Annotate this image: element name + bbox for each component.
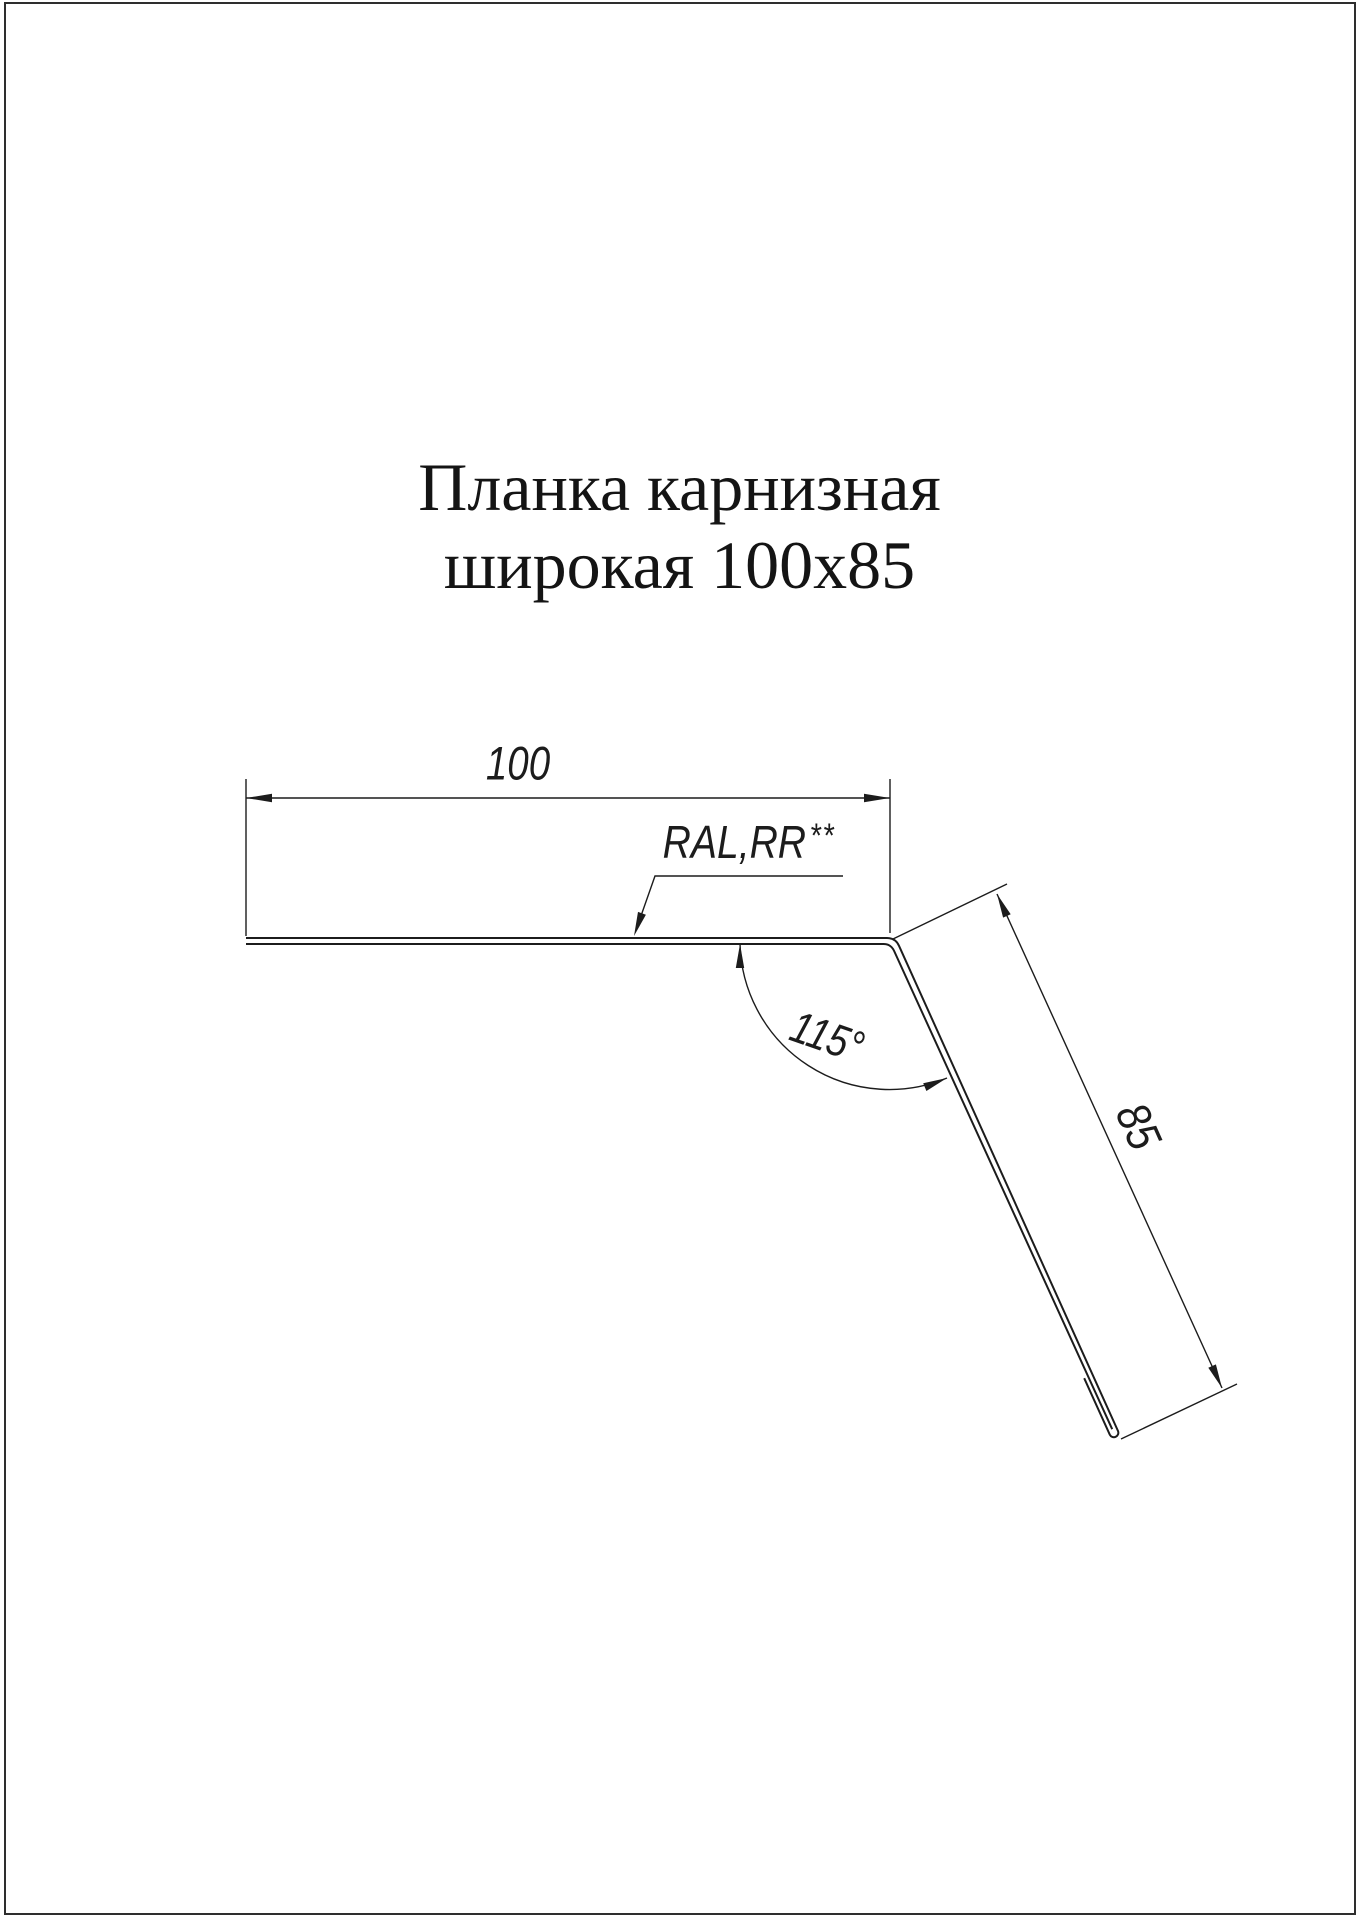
coating-note-asterisks: ** [806, 817, 835, 855]
plate-outer-surface-line [246, 938, 1118, 1437]
drawing-title: Планка карнизная широкая 100x85 [8, 448, 1351, 604]
flange-dimension-line [997, 894, 1222, 1388]
page-border-frame [5, 3, 1355, 1914]
angle-arrow-slope-icon [923, 1078, 947, 1091]
plate-inner-surface-line [246, 944, 1112, 1429]
drawing-sheet: Планка карнизная широкая 100x85 100 RAL,… [0, 0, 1359, 1920]
angle-arrow-top-icon [736, 944, 744, 968]
width-dimension-label: 100 [486, 736, 550, 791]
width-arrow-left-icon [246, 794, 272, 802]
coating-leader-arrow-icon [634, 912, 646, 936]
width-arrow-right-icon [864, 794, 890, 802]
coating-note-text: RAL,RR [663, 816, 806, 868]
flange-arrow-top-icon [997, 894, 1011, 918]
coating-note-label: RAL,RR** [663, 815, 836, 869]
flange-extension-line-bottom [1121, 1384, 1237, 1439]
profile-drawing [0, 0, 1359, 1920]
flange-extension-line-top [893, 884, 1007, 939]
drawing-title-line1: Планка карнизная [8, 448, 1351, 526]
flange-arrow-bottom-icon [1208, 1364, 1222, 1388]
coating-leader-line [641, 876, 843, 917]
drawing-title-line2: широкая 100x85 [8, 526, 1351, 604]
